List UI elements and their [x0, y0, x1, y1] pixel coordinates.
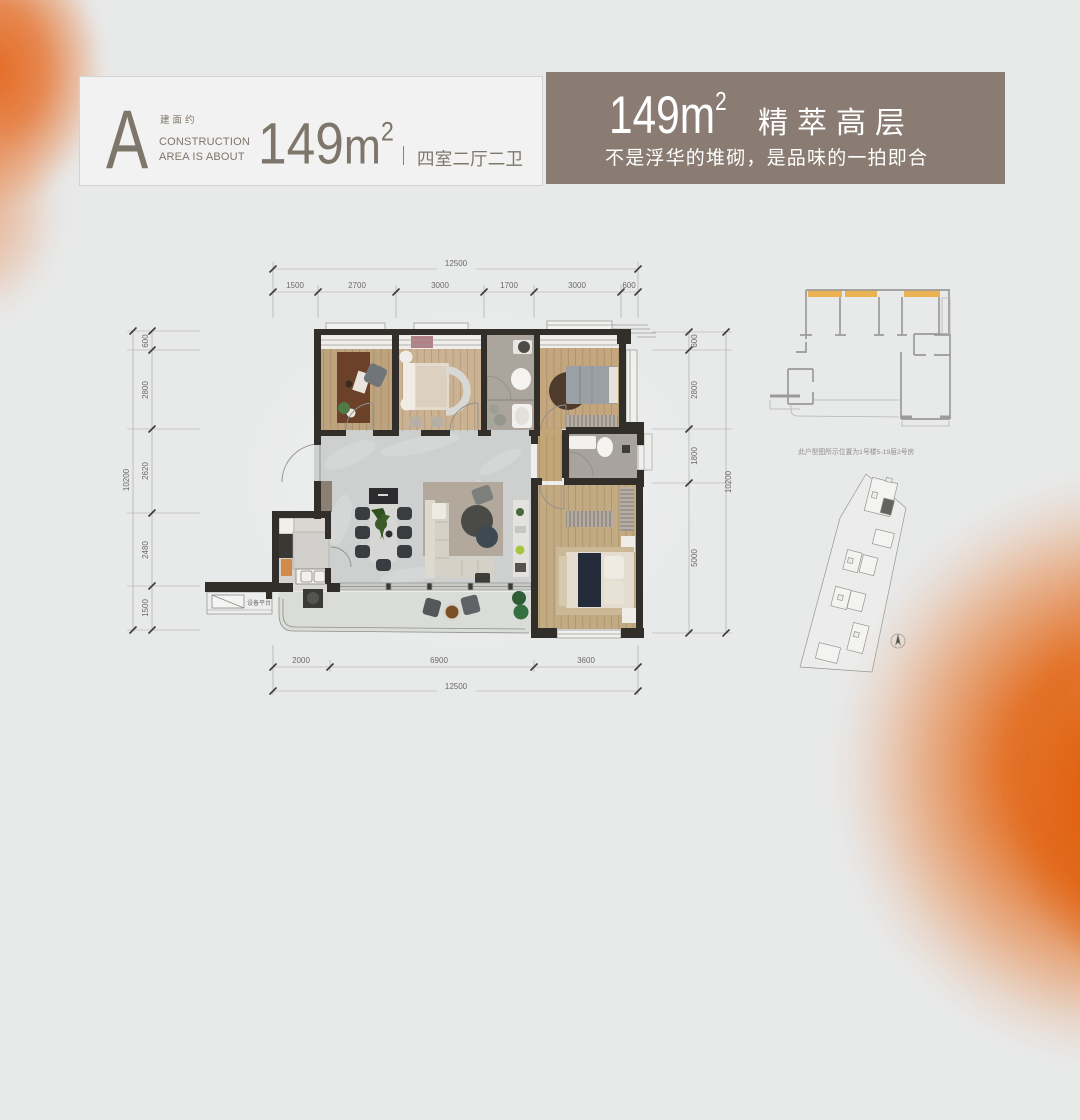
svg-text:10200: 10200	[122, 468, 131, 491]
svg-text:600: 600	[622, 281, 636, 290]
svg-text:2000: 2000	[292, 656, 310, 665]
svg-text:2700: 2700	[348, 281, 366, 290]
svg-text:1800: 1800	[690, 447, 699, 465]
svg-text:3000: 3000	[431, 281, 449, 290]
svg-text:10200: 10200	[724, 470, 733, 493]
svg-text:2800: 2800	[141, 381, 150, 399]
svg-text:12500: 12500	[445, 682, 468, 691]
svg-text:600: 600	[690, 334, 699, 348]
svg-text:2800: 2800	[690, 381, 699, 399]
svg-text:1500: 1500	[141, 599, 150, 617]
svg-text:1700: 1700	[500, 281, 518, 290]
svg-text:此户型图所示位置为1号楼5-19层2号房: 此户型图所示位置为1号楼5-19层2号房	[798, 447, 915, 456]
svg-text:3600: 3600	[577, 656, 595, 665]
svg-text:5000: 5000	[690, 549, 699, 567]
svg-text:3000: 3000	[568, 281, 586, 290]
svg-text:12500: 12500	[445, 259, 468, 268]
svg-text:2480: 2480	[141, 541, 150, 559]
svg-text:2620: 2620	[141, 462, 150, 480]
svg-text:1500: 1500	[286, 281, 304, 290]
svg-text:设备平台: 设备平台	[247, 599, 271, 607]
svg-text:6900: 6900	[430, 656, 448, 665]
svg-text:600: 600	[141, 334, 150, 348]
